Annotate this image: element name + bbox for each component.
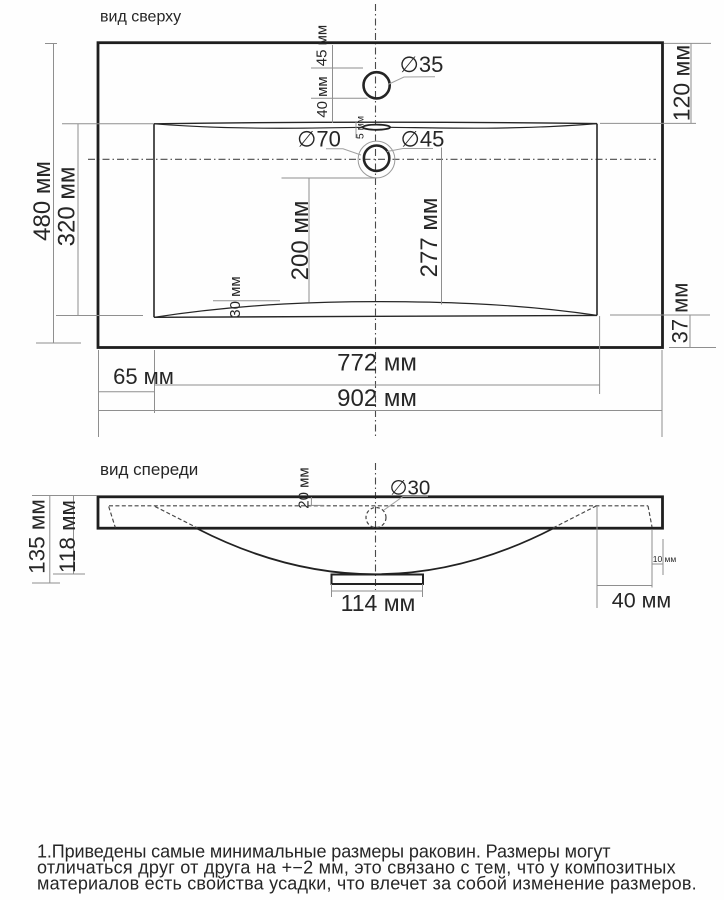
svg-text:20 мм: 20 мм <box>296 467 313 508</box>
svg-text:40 мм: 40 мм <box>612 589 671 613</box>
svg-text:∅30: ∅30 <box>390 477 431 500</box>
svg-text:37 мм: 37 мм <box>668 283 693 344</box>
svg-text:277 мм: 277 мм <box>416 198 443 278</box>
svg-text:∅35: ∅35 <box>400 52 444 77</box>
svg-text:114 мм: 114 мм <box>341 590 416 616</box>
svg-text:5 мм: 5 мм <box>355 116 367 139</box>
svg-text:40 мм: 40 мм <box>314 76 331 117</box>
svg-text:вид сверху: вид сверху <box>100 9 181 26</box>
svg-text:вид спереди: вид спереди <box>100 460 198 479</box>
svg-text:45 мм: 45 мм <box>314 25 331 66</box>
svg-text:65 мм: 65 мм <box>113 364 174 389</box>
svg-text:∅70: ∅70 <box>297 127 341 152</box>
svg-text:∅45: ∅45 <box>401 127 445 152</box>
svg-text:материалов есть свойства усадк: материалов есть свойства усадки, что вле… <box>37 874 697 894</box>
svg-text:320 мм: 320 мм <box>54 167 81 247</box>
svg-text:200 мм: 200 мм <box>287 201 314 281</box>
svg-text:902 мм: 902 мм <box>337 385 417 412</box>
svg-text:772 мм: 772 мм <box>337 350 417 377</box>
svg-text:120 мм: 120 мм <box>669 45 695 121</box>
svg-text:30 мм: 30 мм <box>227 276 244 317</box>
svg-text:10 мм: 10 мм <box>653 554 677 564</box>
svg-text:135 мм: 135 мм <box>25 499 50 574</box>
svg-text:118 мм: 118 мм <box>55 500 80 573</box>
svg-text:480 мм: 480 мм <box>29 161 56 241</box>
